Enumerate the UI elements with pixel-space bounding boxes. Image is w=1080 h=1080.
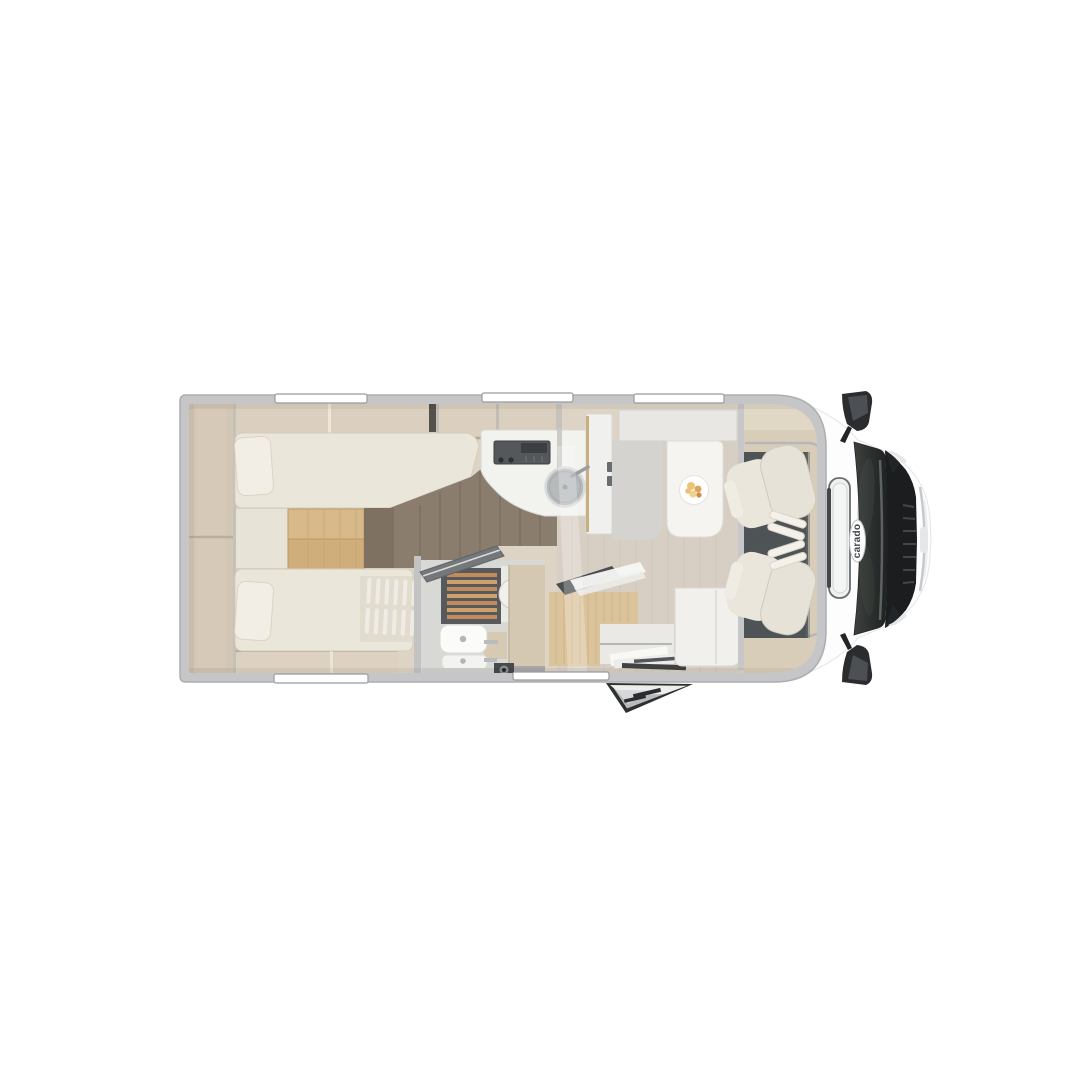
svg-text:carado: carado	[852, 524, 863, 559]
